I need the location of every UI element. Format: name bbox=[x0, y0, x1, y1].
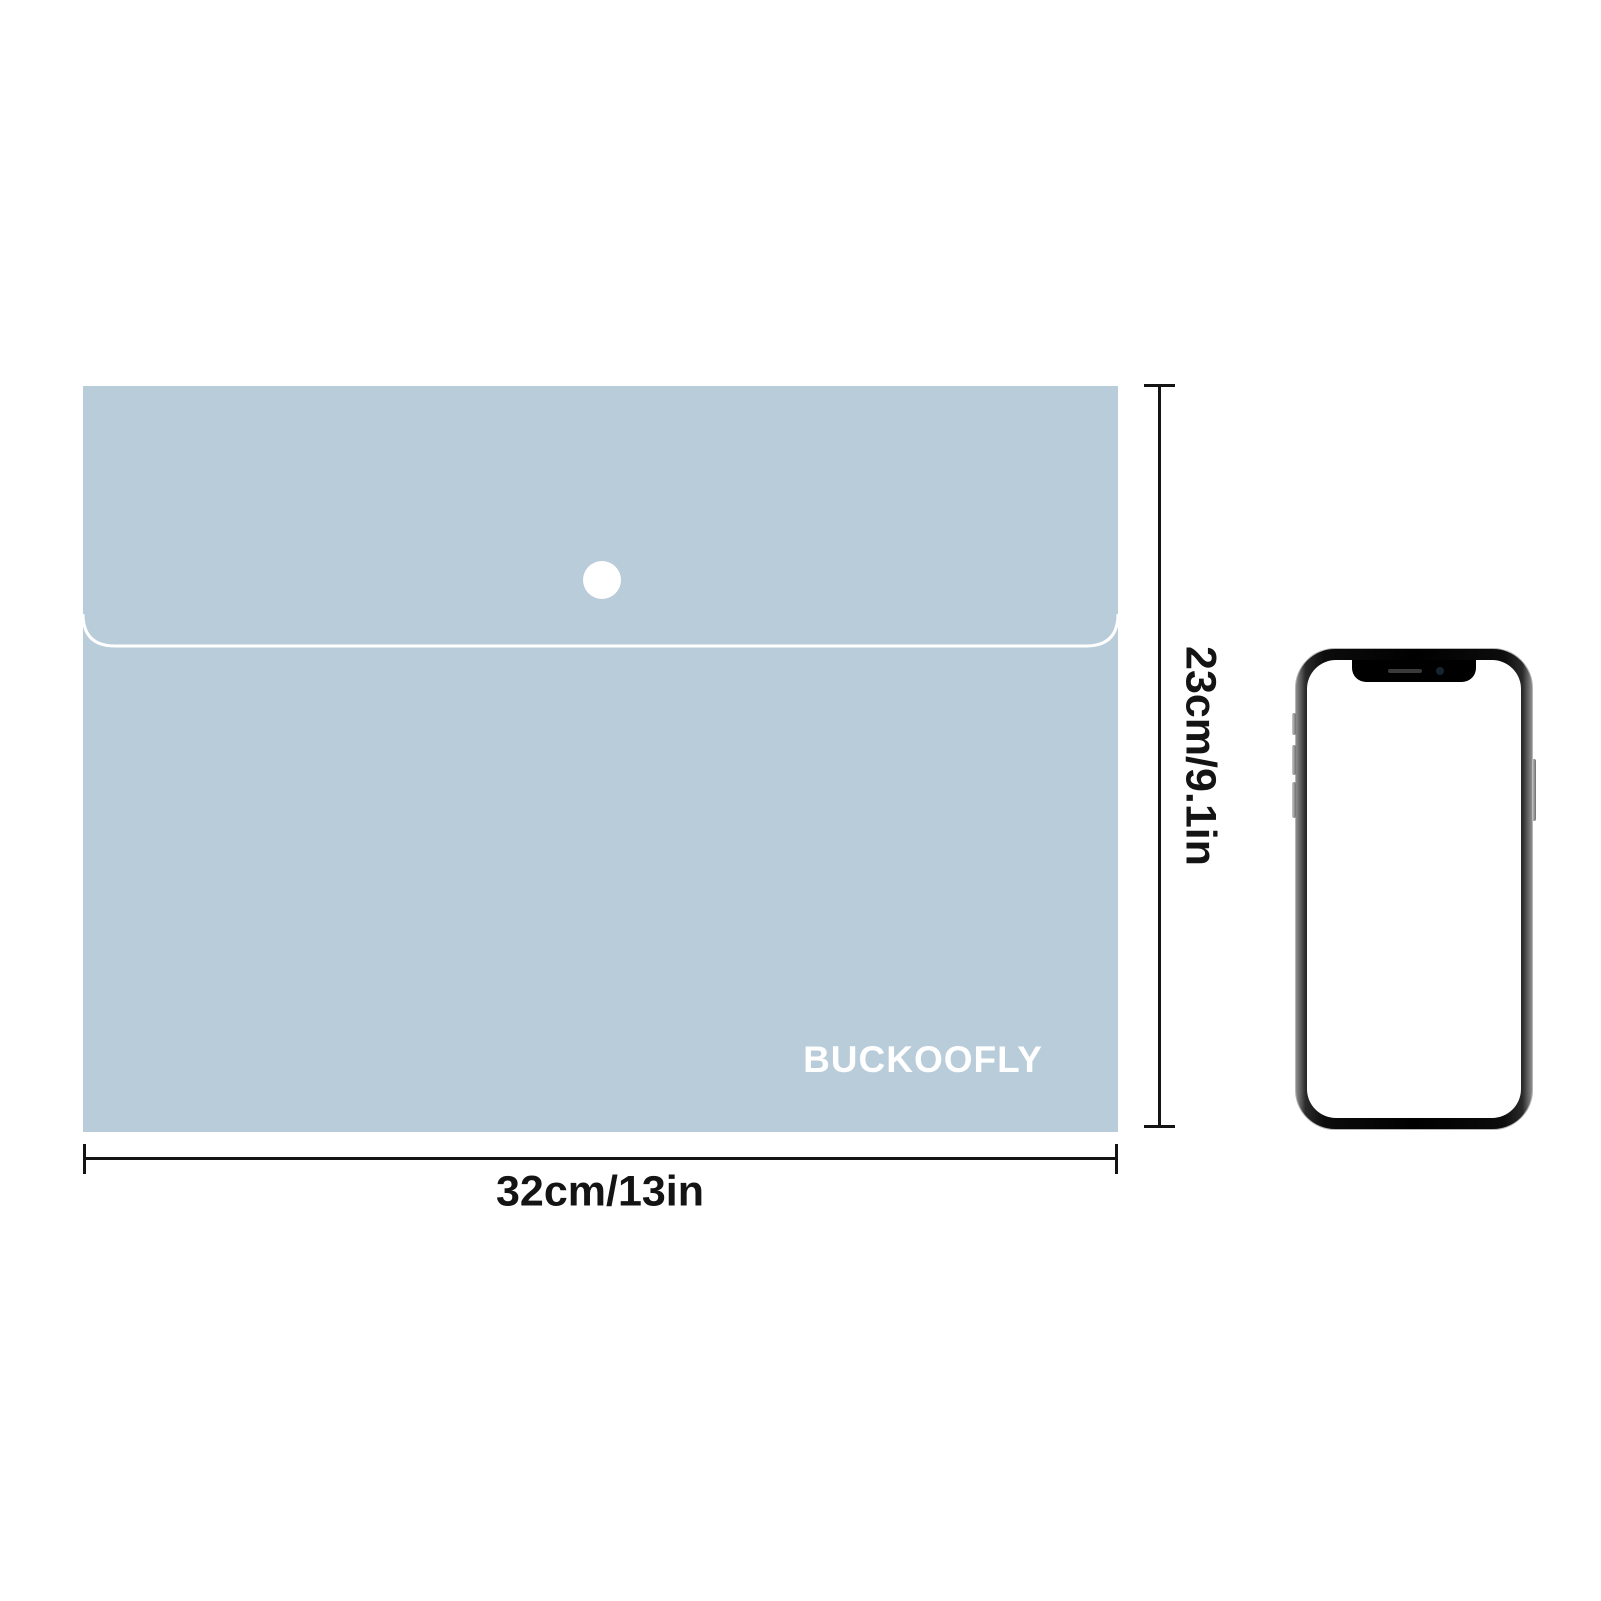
height-dimension-cap-top bbox=[1144, 384, 1175, 387]
smartphone-illustration bbox=[1295, 648, 1533, 1130]
phone-mute-switch-icon bbox=[1292, 713, 1296, 735]
height-dimension-line bbox=[1158, 384, 1161, 1128]
phone-volume-down-button-icon bbox=[1292, 782, 1296, 818]
brand-logo-text: BUCKOOFLY bbox=[803, 1041, 1043, 1078]
product-dimension-diagram: BUCKOOFLY 23cm/9.1in 32cm/13in bbox=[0, 0, 1601, 1601]
flap-edge-line bbox=[83, 386, 1118, 666]
width-dimension-line bbox=[83, 1157, 1118, 1160]
height-dimension-label: 23cm/9.1in bbox=[1179, 646, 1222, 866]
width-dimension-cap-left bbox=[83, 1144, 86, 1174]
phone-power-button-icon bbox=[1532, 759, 1536, 821]
snap-button-icon bbox=[583, 561, 621, 599]
phone-camera-icon bbox=[1436, 667, 1444, 675]
width-dimension-label: 32cm/13in bbox=[496, 1171, 704, 1214]
phone-volume-up-button-icon bbox=[1292, 745, 1296, 775]
phone-notch bbox=[1352, 660, 1476, 682]
folder-envelope: BUCKOOFLY bbox=[83, 386, 1118, 1132]
height-dimension-cap-bottom bbox=[1144, 1125, 1175, 1128]
phone-screen bbox=[1307, 660, 1521, 1118]
phone-speaker-icon bbox=[1388, 669, 1422, 673]
width-dimension-cap-right bbox=[1115, 1144, 1118, 1174]
